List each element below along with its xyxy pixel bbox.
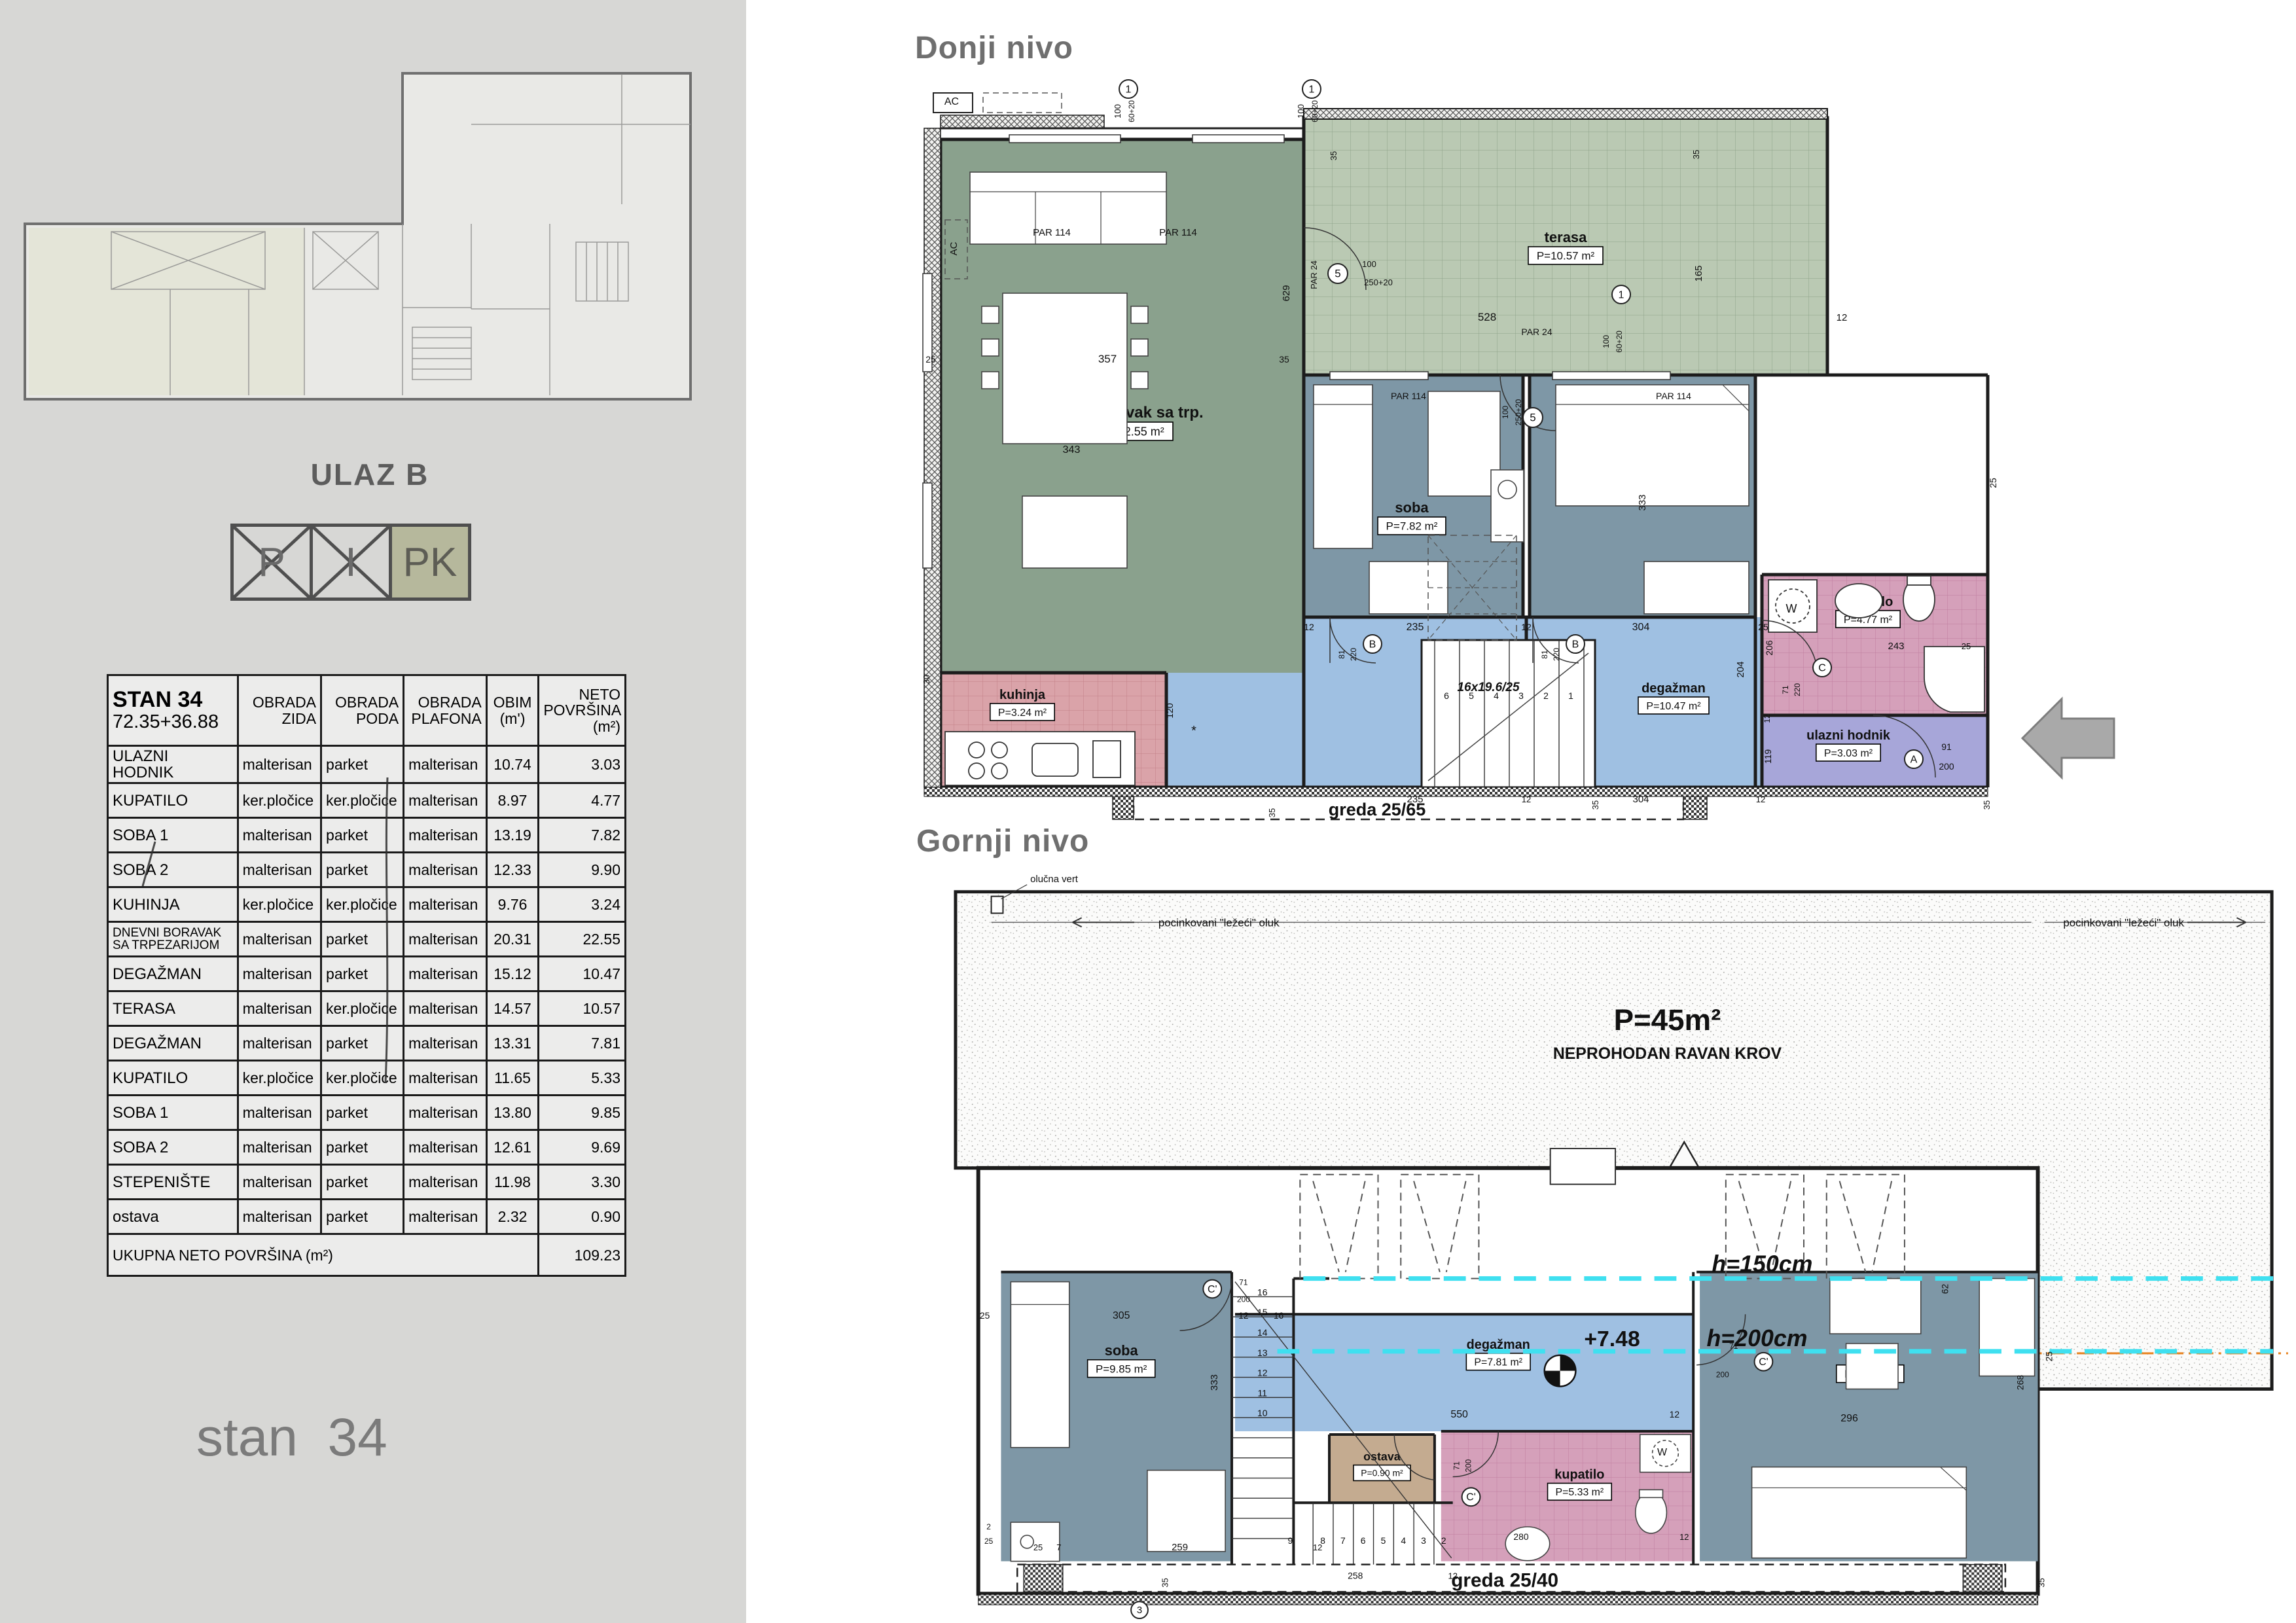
- stair-number: 2: [1441, 1535, 1446, 1546]
- dim-label: 25: [1033, 1543, 1043, 1552]
- dim-label: 119: [1763, 749, 1773, 764]
- grid-bubble-label: 5: [1335, 268, 1340, 280]
- roof-area-label: P=45m²: [1614, 1003, 1721, 1037]
- dim-label: 12: [1522, 794, 1531, 804]
- table-row: TERASAmalterisanker.pločicemalterisan14.…: [108, 991, 626, 1026]
- dim-label: 305: [1113, 1310, 1130, 1321]
- stair-number: 9: [1288, 1535, 1293, 1546]
- dim-label: 12: [1521, 622, 1532, 632]
- gutter-vert-label: olučna vert: [1030, 874, 1079, 885]
- height-label-200: h=200cm: [1706, 1325, 1807, 1351]
- dim-label: 12: [1679, 1532, 1689, 1542]
- dim-label: 220: [1552, 648, 1561, 661]
- dim-label: W: [1786, 602, 1797, 615]
- stair-number: 5: [1381, 1535, 1386, 1546]
- dim-label: 25: [980, 1310, 990, 1321]
- dim-label: 12: [1756, 794, 1765, 804]
- dim-label: 296: [1840, 1413, 1858, 1424]
- gutter-label-left: pocinkovani "ležeći" oluk: [1158, 916, 1280, 929]
- dim-label: 357: [1098, 353, 1117, 365]
- stair-number: 5: [1469, 690, 1474, 701]
- lower-level-title: Donji nivo: [915, 30, 1073, 66]
- dim-label: 206: [1764, 640, 1774, 656]
- area-table: STAN 3472.35+36.88OBRADAZIDAOBRADAPODAOB…: [107, 674, 626, 1277]
- dim-label: 629: [1281, 285, 1292, 301]
- dim-label: 81: [1540, 650, 1549, 659]
- level-box-p-label: P: [258, 539, 285, 586]
- dim-label: PAR 114: [1656, 391, 1691, 401]
- dim-label: 268: [2015, 1375, 2026, 1390]
- room-area-label: P=3.24 m²: [998, 707, 1047, 719]
- dim-label: 100: [1501, 406, 1510, 419]
- gutter-label-right: pocinkovani "ležeći" oluk: [2063, 916, 2184, 929]
- grid-bubble-label: 1: [1309, 84, 1315, 95]
- dim-label: 280: [1513, 1531, 1528, 1542]
- table-row: SOBA 1malterisanparketmalterisan13.197.8…: [108, 818, 626, 853]
- dim-label: 100: [1362, 259, 1376, 269]
- stair-number: 3: [1518, 690, 1524, 701]
- stair-number: 8: [1320, 1535, 1325, 1546]
- level-selector: P I PK: [230, 524, 468, 601]
- dim-label: 35: [1279, 354, 1289, 365]
- dim-label: PAR 24: [1521, 327, 1552, 337]
- table-row: KUHINJAker.pločiceker.pločicemalterisan9…: [108, 887, 626, 922]
- dim-label: 71: [1729, 1342, 1738, 1351]
- dim-label: 200: [1716, 1370, 1729, 1380]
- dim-label: 100: [1113, 104, 1122, 118]
- dim-label: PAR 114: [1391, 391, 1426, 401]
- dim-label: 235: [1407, 794, 1423, 805]
- stair-number: 2: [1543, 690, 1549, 701]
- dim-label: 220: [1793, 683, 1802, 696]
- table-row: DNEVNI BORAVAK SA TRPEZARIJOMmalterisanp…: [108, 922, 626, 957]
- dim-label: 81: [1337, 650, 1346, 659]
- dim-label: 25: [925, 354, 936, 365]
- dim-label: 7: [1056, 1543, 1061, 1552]
- dim-label: 12: [1837, 312, 1848, 323]
- dim-label: 35: [2036, 1578, 2046, 1587]
- table-subtitle: 72.35+36.88: [113, 712, 233, 732]
- entrance-label: ULAZ B: [249, 457, 491, 492]
- dim-label: 25: [1758, 622, 1768, 632]
- stair-number: 13: [1257, 1347, 1268, 1358]
- sidebar: ULAZ B P I PK STAN 3472.35+36.88OBRADAZI…: [0, 0, 746, 1623]
- grid-bubble-label: C': [1208, 1284, 1217, 1295]
- table-row: DEGAŽMANmalterisanparketmalterisan15.121…: [108, 957, 626, 991]
- stair-number: 6: [1361, 1535, 1366, 1546]
- dim-label: 35: [1982, 800, 1992, 810]
- dim-label: 250+20: [1364, 277, 1393, 287]
- level-mark-label: +7.48: [1584, 1327, 1640, 1351]
- lower-level-plan: terasaP=10.57 m²dn. boravak sa trp.P=22.…: [911, 77, 2181, 830]
- dim-label: 204: [1735, 661, 1746, 677]
- dim-label: PAR 24: [1309, 260, 1319, 289]
- dim-label: 304: [1632, 794, 1649, 805]
- dim-label: 250+20: [1514, 399, 1523, 425]
- dim-label: 12: [1304, 622, 1314, 632]
- floorplan-sheet: { "sidebar": { "ulaz_label": "ULAZ B", "…: [0, 0, 2296, 1623]
- dim-label: 62: [1939, 1284, 1950, 1294]
- level-box-pk: PK: [389, 524, 471, 601]
- room-label: degažman: [1641, 681, 1706, 696]
- dim-label: *: [1191, 724, 1196, 738]
- room-label: soba: [1105, 1342, 1139, 1359]
- dim-label: 25: [1988, 478, 1998, 488]
- dim-label: 35: [1267, 808, 1277, 817]
- room-area-label: P=5.33 m²: [1556, 1487, 1604, 1498]
- dim-label: 165: [1693, 265, 1704, 281]
- dim-label: 35: [1329, 151, 1338, 160]
- stair-number: 3: [1421, 1535, 1426, 1546]
- room-label: terasa: [1545, 229, 1588, 245]
- column-header: OBIM(m'): [486, 675, 539, 746]
- table-header-row: STAN 3472.35+36.88OBRADAZIDAOBRADAPODAOB…: [108, 675, 626, 746]
- grid-bubble-label: C': [1759, 1357, 1768, 1368]
- dim-label: 304: [1632, 622, 1650, 633]
- dim-label: 30: [922, 675, 931, 684]
- table-row: SOBA 2malterisanparketmalterisan12.339.9…: [108, 853, 626, 887]
- table-footer-row: UKUPNA NETO POVRŠINA (m²)109.23: [108, 1234, 626, 1276]
- room-label: ulazni hodnik: [1806, 728, 1891, 743]
- room-area-label: P=10.57 m²: [1537, 250, 1595, 262]
- entrance-arrow-icon: [2022, 699, 2114, 777]
- dim-label: 235: [1407, 622, 1424, 633]
- dim-label: 2: [986, 1522, 991, 1531]
- room-label: soba: [1395, 499, 1429, 516]
- table-row: ostavamalterisanparketmalterisan2.320.90: [108, 1200, 626, 1234]
- dim-label: 35: [1590, 800, 1600, 810]
- stair-number: 4: [1494, 690, 1499, 701]
- dim-label: 258: [1348, 1570, 1363, 1580]
- apartment-caption: stan 34: [196, 1407, 387, 1469]
- stair-number: 4: [1401, 1535, 1406, 1546]
- table-row: KUPATILOker.pločiceker.pločicemalterisan…: [108, 1061, 626, 1096]
- grid-bubble-label: B: [1369, 639, 1376, 650]
- overview-plan: [13, 46, 726, 429]
- room-area-label: P=7.81 m²: [1474, 1357, 1522, 1368]
- level-box-pk-label: PK: [403, 539, 457, 586]
- dim-label: AC: [948, 241, 960, 255]
- level-mark-icon: [1545, 1355, 1576, 1387]
- table-row: SOBA 2malterisanparketmalterisan12.619.6…: [108, 1130, 626, 1165]
- dim-label: 243: [1888, 641, 1904, 652]
- table-row: ULAZNI HODNIKmalterisanparketmalterisan1…: [108, 746, 626, 783]
- dim-label: 200: [1939, 761, 1954, 772]
- dim-label: AC: [944, 96, 959, 107]
- room-area-label: P=7.82 m²: [1386, 520, 1438, 533]
- grid-bubble-label: A: [1910, 754, 1918, 765]
- dim-label: 71: [1781, 685, 1790, 694]
- dim-label: 333: [1210, 1374, 1220, 1391]
- column-header: NETOPOVRŠINA (m²): [539, 675, 626, 746]
- column-header: OBRADAPODA: [321, 675, 404, 746]
- level-box-i-label: I: [345, 539, 356, 586]
- grid-bubble-label: 3: [1137, 1605, 1142, 1616]
- stair-number: 10: [1257, 1408, 1268, 1418]
- dim-label: 343: [1063, 444, 1081, 455]
- grid-bubble-label: C: [1818, 662, 1826, 673]
- area-table-wrap: STAN 3472.35+36.88OBRADAZIDAOBRADAPODAOB…: [107, 674, 626, 1277]
- grid-bubble-label: C': [1466, 1492, 1476, 1503]
- dim-label: 220: [1349, 648, 1358, 661]
- roof-name-label: NEPROHODAN RAVAN KROV: [1553, 1045, 1782, 1063]
- dim-label: PAR 114: [1033, 227, 1071, 238]
- dim-label: 120: [1164, 703, 1175, 719]
- dim-label: 200: [1237, 1294, 1250, 1304]
- dim-label: 91: [1941, 741, 1952, 752]
- upper-level-plan: pocinkovani "ležeći" oluk pocinkovani "l…: [935, 863, 2296, 1623]
- dim-label: 550: [1450, 1409, 1468, 1420]
- stair-number: 7: [1340, 1535, 1346, 1546]
- dim-label: 259: [1172, 1543, 1188, 1553]
- dim-label: 60+20: [1127, 100, 1136, 122]
- dim-label: 100: [1602, 335, 1611, 348]
- column-header: OBRADAPLAFONA: [404, 675, 487, 746]
- table-title: STAN 34: [113, 688, 233, 712]
- stair-number: 6: [1444, 690, 1449, 701]
- dim-label: 12: [1670, 1409, 1680, 1419]
- table-row: KUPATILOker.pločiceker.pločicemalterisan…: [108, 783, 626, 818]
- dim-label: 200: [1464, 1459, 1473, 1472]
- dim-label: 60+20: [1310, 100, 1319, 122]
- dim-label: 35: [1691, 150, 1701, 159]
- grid-bubble-label: 1: [1619, 289, 1624, 300]
- dim-label: 12: [1448, 1571, 1458, 1580]
- column-header: OBRADAZIDA: [238, 675, 321, 746]
- table-row: STEPENIŠTEmalterisanparketmalterisan11.9…: [108, 1165, 626, 1200]
- stair-number: 1: [1568, 690, 1573, 701]
- dim-label: 25: [984, 1537, 994, 1546]
- dim-label: 333: [1637, 494, 1648, 510]
- dim-label: 100: [1296, 104, 1306, 118]
- dim-label: W: [1657, 1447, 1667, 1458]
- room-label: kuhinja: [999, 688, 1046, 702]
- room-area-label: P=9.85 m²: [1096, 1363, 1147, 1375]
- stair-number: 14: [1257, 1327, 1268, 1338]
- dim-label: 25: [1962, 641, 1971, 651]
- dim-label: 60+20: [1615, 330, 1624, 353]
- dim-label: 71: [1452, 1461, 1462, 1471]
- grid-bubble-label: 5: [1530, 412, 1535, 424]
- stair-number: 11: [1258, 1387, 1268, 1398]
- table-row: SOBA 1malterisanparketmalterisan13.809.8…: [108, 1096, 626, 1130]
- room-label: kupatilo: [1554, 1468, 1604, 1482]
- room-area-label: P=3.03 m²: [1824, 748, 1873, 759]
- beam-label: greda 25/40: [1451, 1569, 1558, 1591]
- dim-label: 25: [2043, 1351, 2054, 1362]
- table-row: DEGAŽMANmalterisanparketmalterisan13.317…: [108, 1026, 626, 1061]
- grid-bubble-label: B: [1572, 639, 1579, 650]
- dim-label: 16: [1274, 1310, 1284, 1321]
- grid-bubble-label: 1: [1126, 84, 1132, 95]
- stairs-spec-label: 16x19.6/25: [1457, 681, 1520, 694]
- level-box-p: P: [230, 524, 313, 601]
- height-label-150: h=150cm: [1712, 1251, 1812, 1277]
- dim-label: 35: [1160, 1578, 1170, 1587]
- dim-label: 71: [1239, 1278, 1248, 1287]
- stair-number: 12: [1257, 1368, 1268, 1378]
- room-label: ostava: [1363, 1450, 1401, 1463]
- dim-label: 12: [1763, 714, 1772, 723]
- dim-label: PAR 114: [1159, 227, 1197, 238]
- dim-label: 528: [1478, 311, 1496, 323]
- stair-number: 15: [1257, 1307, 1268, 1317]
- level-box-i: I: [310, 524, 392, 601]
- dim-label: 12: [1238, 1310, 1249, 1321]
- room-area-label: P=10.47 m²: [1646, 701, 1701, 712]
- stair-number: 16: [1257, 1287, 1268, 1297]
